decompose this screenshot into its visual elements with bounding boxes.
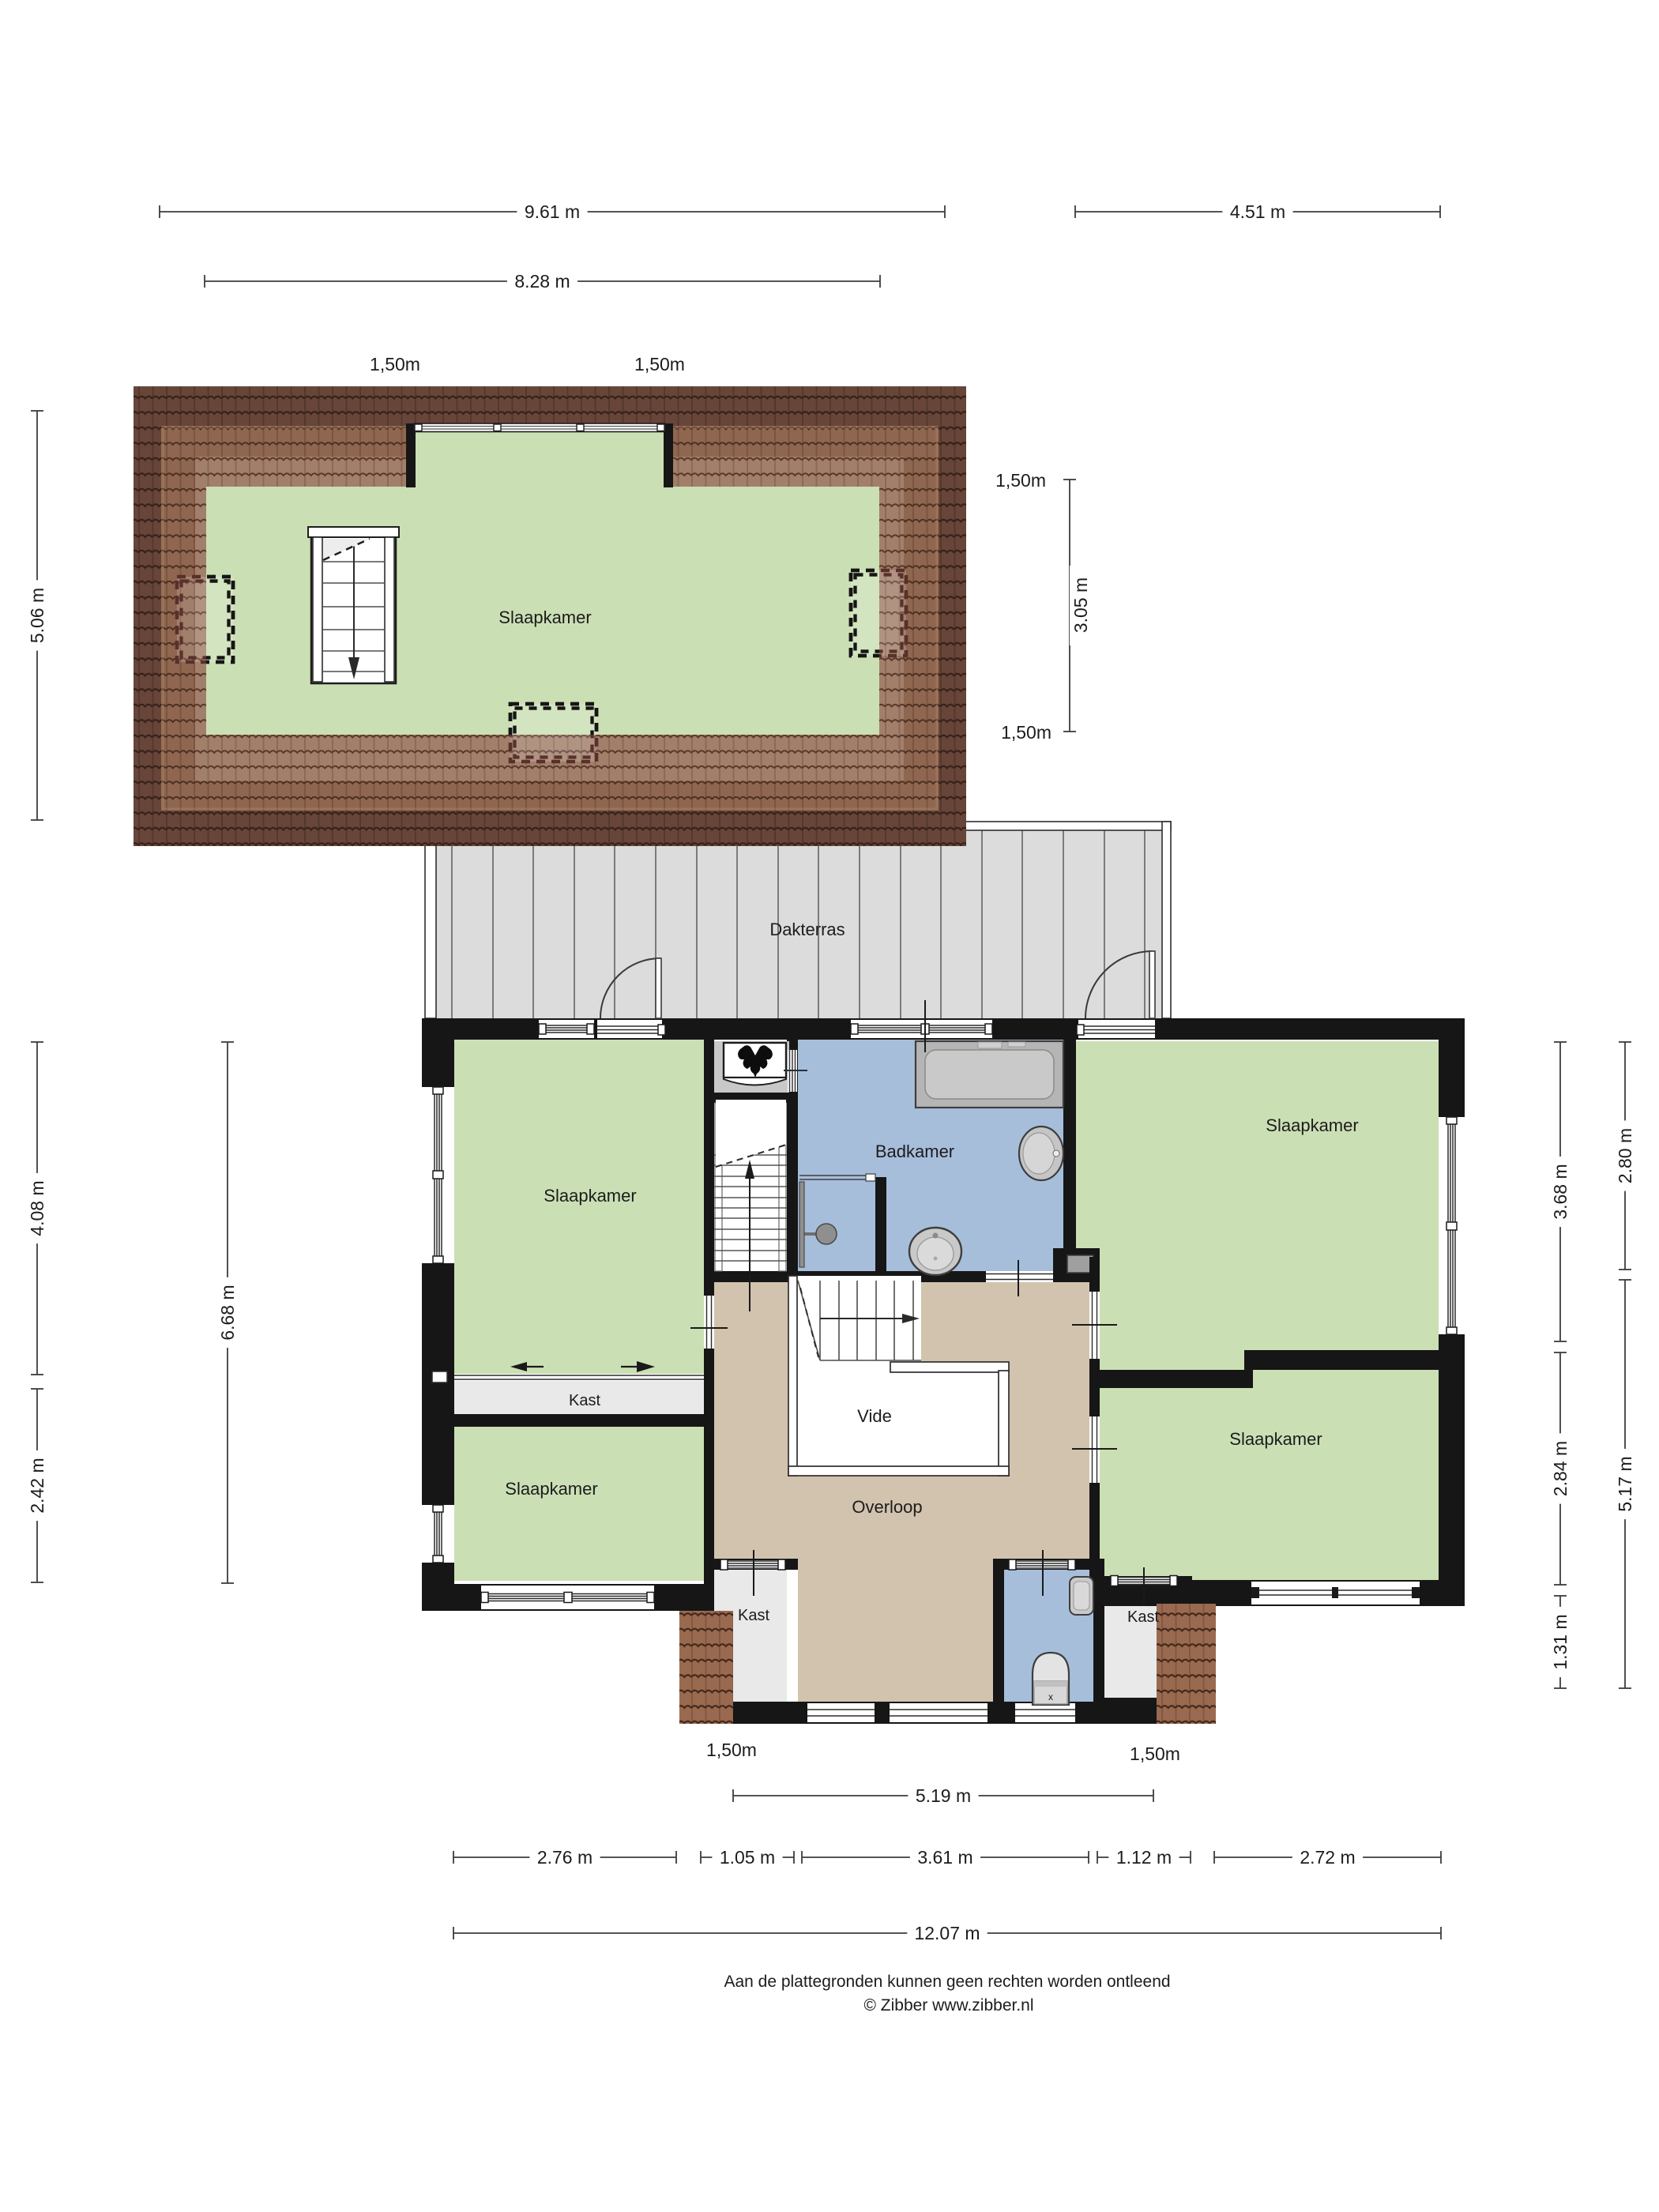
svg-text:Kast: Kast bbox=[569, 1392, 600, 1409]
svg-text:8.28 m: 8.28 m bbox=[514, 271, 570, 292]
svg-text:5.19 m: 5.19 m bbox=[916, 1785, 971, 1806]
svg-text:3.05 m: 3.05 m bbox=[1070, 577, 1091, 633]
svg-text:2.72 m: 2.72 m bbox=[1300, 1847, 1355, 1868]
svg-text:12.07 m: 12.07 m bbox=[914, 1923, 980, 1943]
svg-text:Vide: Vide bbox=[857, 1406, 892, 1426]
svg-text:4.51 m: 4.51 m bbox=[1230, 201, 1285, 222]
svg-text:1.05 m: 1.05 m bbox=[720, 1847, 775, 1868]
svg-text:1,50m: 1,50m bbox=[706, 1740, 757, 1760]
svg-text:3.61 m: 3.61 m bbox=[917, 1847, 972, 1868]
svg-text:Dakterras: Dakterras bbox=[769, 920, 845, 939]
svg-text:x: x bbox=[1048, 1691, 1053, 1702]
svg-text:2.80 m: 2.80 m bbox=[1615, 1128, 1635, 1183]
svg-text:6.68 m: 6.68 m bbox=[217, 1285, 238, 1340]
svg-text:Kast: Kast bbox=[738, 1607, 769, 1624]
svg-text:1,50m: 1,50m bbox=[370, 354, 420, 374]
svg-text:5.17 m: 5.17 m bbox=[1615, 1456, 1635, 1511]
svg-text:2.42 m: 2.42 m bbox=[27, 1458, 47, 1513]
svg-text:3.68 m: 3.68 m bbox=[1550, 1164, 1571, 1219]
svg-text:1,50m: 1,50m bbox=[634, 354, 685, 374]
svg-text:9.61 m: 9.61 m bbox=[525, 201, 580, 222]
svg-text:Slaapkamer: Slaapkamer bbox=[1266, 1115, 1358, 1135]
svg-text:4.08 m: 4.08 m bbox=[27, 1180, 47, 1236]
svg-text:1,50m: 1,50m bbox=[1001, 722, 1051, 743]
svg-text:1,50m: 1,50m bbox=[995, 470, 1046, 491]
svg-text:2.76 m: 2.76 m bbox=[537, 1847, 592, 1868]
svg-text:5.06 m: 5.06 m bbox=[27, 588, 47, 643]
svg-text:Badkamer: Badkamer bbox=[875, 1142, 954, 1161]
svg-text:Kast: Kast bbox=[1127, 1608, 1159, 1626]
svg-text:Slaapkamer: Slaapkamer bbox=[544, 1186, 636, 1206]
svg-text:Aan de plattegronden kunnen ge: Aan de plattegronden kunnen geen rechten… bbox=[724, 1973, 1170, 1991]
svg-text:1.31 m: 1.31 m bbox=[1550, 1614, 1571, 1669]
svg-text:Overloop: Overloop bbox=[852, 1497, 922, 1517]
svg-text:1.12 m: 1.12 m bbox=[1116, 1847, 1172, 1868]
svg-text:Slaapkamer: Slaapkamer bbox=[1229, 1429, 1322, 1449]
svg-text:© Zibber www.zibber.nl: © Zibber www.zibber.nl bbox=[863, 1996, 1033, 2014]
svg-text:2.84 m: 2.84 m bbox=[1550, 1441, 1571, 1496]
svg-text:Slaapkamer: Slaapkamer bbox=[505, 1479, 597, 1499]
svg-text:1,50m: 1,50m bbox=[1130, 1744, 1180, 1764]
svg-text:Slaapkamer: Slaapkamer bbox=[498, 608, 591, 627]
